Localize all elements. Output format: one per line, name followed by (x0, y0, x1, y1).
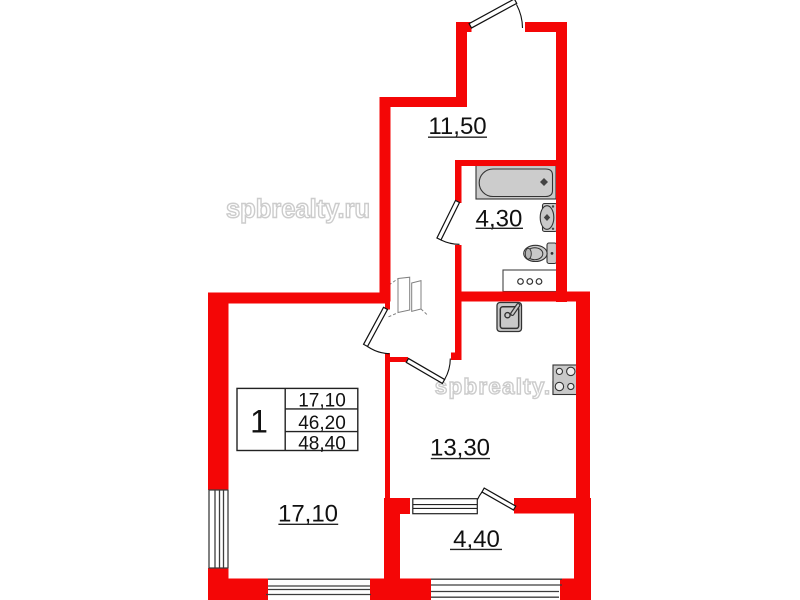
svg-text:17,10: 17,10 (298, 390, 346, 411)
svg-text:48,40: 48,40 (298, 433, 346, 454)
svg-text:13,30: 13,30 (430, 434, 490, 461)
svg-text:46,20: 46,20 (298, 413, 346, 434)
svg-text:1: 1 (250, 404, 268, 440)
svg-text:17,10: 17,10 (278, 500, 338, 527)
svg-text:spbrealty.ru: spbrealty.ru (226, 196, 370, 224)
svg-text:11,50: 11,50 (428, 113, 486, 140)
